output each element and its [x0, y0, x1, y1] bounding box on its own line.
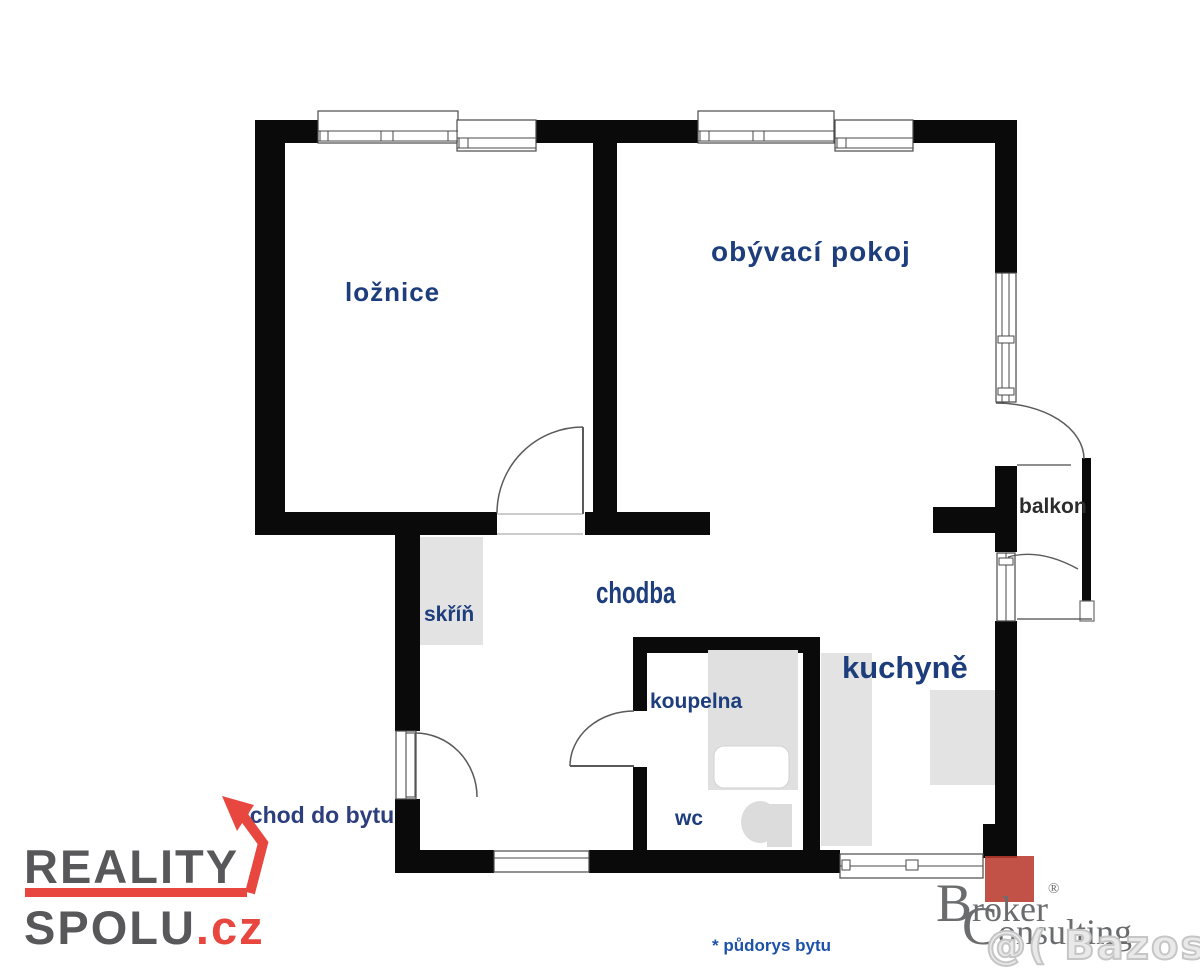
door-arc-koupelna: [570, 711, 634, 766]
room-label-kuchyne: kuchyně: [842, 652, 968, 683]
window-chodba: [494, 851, 589, 872]
wall-segment: [395, 850, 494, 873]
door-arc-balcony-obyvaci: [996, 403, 1084, 459]
window-detail: [998, 388, 1014, 395]
wall-segment-bathroom: [633, 637, 647, 711]
wall-segment: [995, 143, 1017, 273]
window-obyvaci-2: [835, 120, 913, 151]
window-detail: [906, 860, 918, 870]
balcony-step: [1080, 601, 1094, 621]
window-detail: [320, 131, 328, 141]
wall-segment: [995, 621, 1017, 858]
window-loznice-2: [457, 120, 536, 151]
room-label-obyvaci-pokoj: obývací pokoj: [711, 238, 911, 266]
reality-spolu-tld: .cz: [196, 901, 265, 954]
bazos-watermark: @( Bazos.cz: [986, 923, 1200, 969]
window-detail: [381, 131, 393, 141]
window-detail: [999, 558, 1013, 565]
room-label-koupelna: koupelna: [650, 691, 742, 712]
wall-segment: [395, 535, 420, 731]
balcony-railing: [1082, 458, 1091, 601]
registered-trademark: ®: [1048, 881, 1059, 897]
door-arc-entrance: [415, 733, 477, 797]
plan-caption: * půdorys bytu: [712, 936, 831, 956]
window-detail: [837, 138, 846, 148]
wall-segment: [995, 466, 1017, 552]
balcony-outline: [1017, 465, 1092, 619]
window-obyvaci-1: [698, 111, 834, 143]
floorplan-drawing: [0, 0, 1200, 973]
door-leaf-entrance: [406, 733, 415, 797]
wall-segment: [255, 120, 285, 535]
reality-spolu-word2: SPOLU: [24, 901, 196, 954]
wall-segment: [933, 507, 995, 533]
bathtub-basin: [714, 746, 789, 788]
window-detail: [459, 138, 468, 148]
window-detail: [998, 336, 1014, 343]
entrance-label: vchod do bytu: [237, 804, 394, 827]
door-arc-balcony-kuchyne: [1008, 554, 1078, 569]
wall-segment: [585, 512, 710, 535]
wall-segment-bathroom: [633, 767, 647, 853]
wall-segment-bathroom: [803, 653, 820, 853]
wall-segment: [534, 120, 698, 143]
wall-segment: [593, 143, 617, 514]
floorplan-image: ložnice obývací pokoj chodba skříň koupe…: [0, 0, 1200, 973]
wall-segment: [912, 120, 1017, 143]
window-detail: [753, 131, 764, 141]
window-detail: [700, 131, 709, 141]
wall-segment: [255, 512, 497, 535]
wall-segment: [983, 824, 1017, 858]
toilet-tank: [767, 804, 792, 847]
door-arc-loznice: [497, 427, 583, 513]
room-label-wc: wc: [675, 808, 703, 829]
reality-spolu-word1: REALITY: [24, 843, 265, 890]
room-label-skrin: skříň: [424, 604, 474, 625]
room-label-balkon: balkon: [1019, 496, 1087, 517]
wall-segment: [589, 850, 840, 873]
reality-spolu-logo: REALITY SPOLU.cz: [24, 843, 265, 951]
window-detail: [842, 860, 850, 870]
room-label-loznice: ložnice: [345, 279, 440, 305]
kitchen-appliance-fixture: [930, 690, 995, 785]
window-detail: [448, 131, 457, 141]
room-label-chodba: chodba: [596, 577, 675, 608]
wardrobe-fixture: [420, 537, 483, 645]
